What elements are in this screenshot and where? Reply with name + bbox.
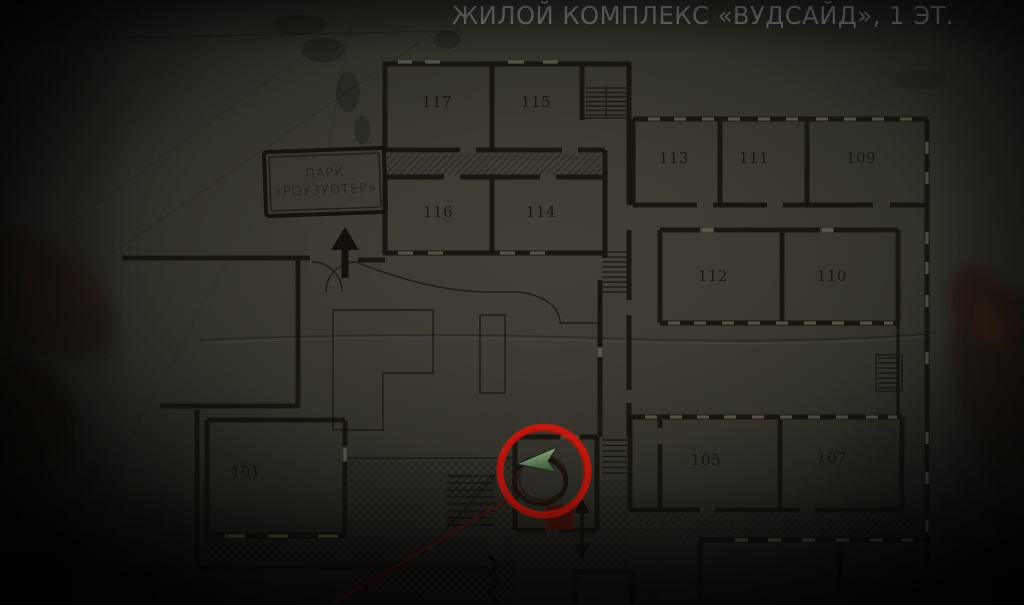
right-thumb [925, 255, 1024, 521]
game-screenshot-map-view: ЖИЛОЙ КОМПЛЕКС «ВУДСАЙД», 1 ЭТ. ПАРК «РО… [0, 0, 1024, 605]
left-finger [0, 193, 138, 496]
hands-layer [0, 0, 1024, 605]
